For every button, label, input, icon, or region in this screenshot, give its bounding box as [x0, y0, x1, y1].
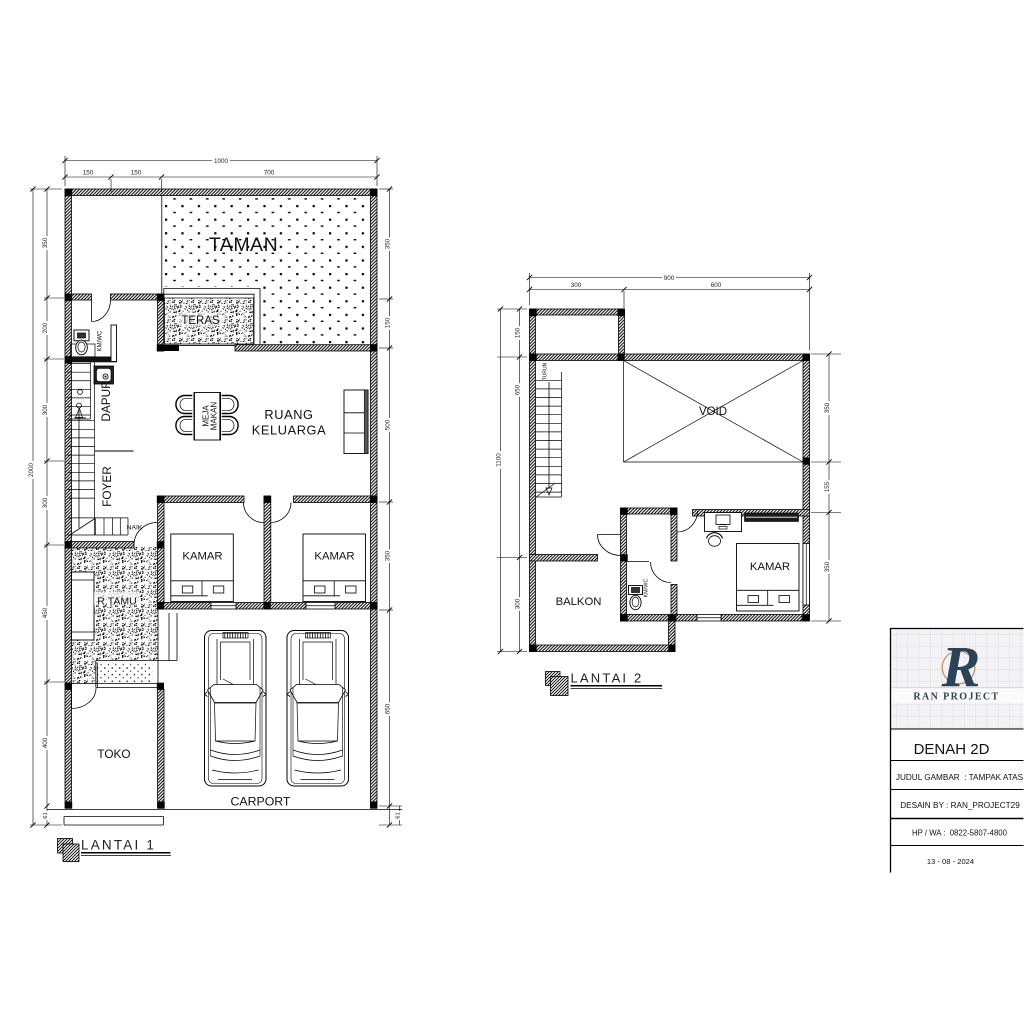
svg-text:R: R [941, 634, 981, 699]
svg-text:HP / WA : 0822-5807-4800: HP / WA : 0822-5807-4800 [912, 829, 1008, 838]
svg-text:61: 61 [43, 812, 49, 818]
svg-text:DENAH 2D: DENAH 2D [914, 741, 990, 758]
svg-text:KAMAR: KAMAR [182, 551, 222, 563]
svg-text:300: 300 [515, 598, 522, 609]
svg-text:TOKO: TOKO [97, 747, 130, 761]
svg-text:300: 300 [42, 497, 49, 508]
svg-text:1100: 1100 [496, 453, 503, 467]
svg-text:700: 700 [264, 170, 275, 177]
svg-text:400: 400 [42, 737, 49, 748]
svg-text:TURUN: TURUN [543, 362, 549, 380]
svg-text:DESAIN BY : RAN_PROJECT29: DESAIN BY : RAN_PROJECT29 [900, 801, 1020, 810]
svg-text:KELUARGA: KELUARGA [252, 423, 327, 438]
svg-text:1000: 1000 [214, 158, 229, 165]
svg-text:KM/WC: KM/WC [644, 579, 650, 598]
svg-text:VOID: VOID [699, 406, 727, 418]
svg-text:450: 450 [42, 607, 49, 618]
svg-text:150: 150 [131, 170, 142, 177]
svg-text:650: 650 [385, 703, 392, 714]
svg-text:BALKON: BALKON [556, 596, 602, 608]
svg-text:LANTAI 1: LANTAI 1 [81, 838, 156, 853]
svg-text:350: 350 [42, 237, 49, 248]
svg-text:150: 150 [385, 317, 392, 328]
svg-text:NAIK: NAIK [127, 525, 143, 532]
svg-text:KAMAR: KAMAR [314, 551, 354, 563]
svg-text:350: 350 [385, 238, 392, 249]
svg-text:600: 600 [711, 282, 722, 289]
svg-text:KM/WC: KM/WC [98, 330, 104, 351]
svg-text:200: 200 [42, 322, 49, 333]
svg-text:CARPORT: CARPORT [231, 795, 291, 809]
svg-text:13 - 08 - 2024: 13 - 08 - 2024 [927, 857, 974, 866]
svg-text:150: 150 [83, 170, 94, 177]
svg-text:RAN PROJECT: RAN PROJECT [913, 692, 999, 703]
svg-text:LANTAI 2: LANTAI 2 [571, 671, 644, 686]
svg-text:150: 150 [515, 327, 522, 338]
svg-text:2000: 2000 [28, 463, 35, 478]
svg-text:TAMAN: TAMAN [209, 234, 278, 256]
svg-text:650: 650 [515, 384, 522, 395]
svg-text:350: 350 [824, 561, 831, 572]
svg-text:61: 61 [396, 812, 402, 818]
svg-text:350: 350 [385, 550, 392, 561]
svg-text:500: 500 [385, 419, 392, 430]
svg-text:KAMAR: KAMAR [750, 561, 790, 573]
svg-text:R.TAMU: R.TAMU [97, 596, 136, 608]
svg-text:FOYER: FOYER [100, 466, 114, 507]
svg-text:TERAS: TERAS [181, 315, 220, 327]
svg-text:MAKAN: MAKAN [210, 402, 219, 431]
svg-text:JUDUL GAMBAR : TAMPAK ATAS: JUDUL GAMBAR : TAMPAK ATAS [896, 773, 1024, 782]
svg-text:DAPUR: DAPUR [99, 380, 113, 421]
svg-text:155: 155 [824, 481, 831, 492]
svg-text:RUANG: RUANG [264, 407, 313, 422]
svg-text:300: 300 [571, 282, 582, 289]
svg-text:350: 350 [824, 402, 831, 413]
svg-text:900: 900 [664, 275, 675, 282]
svg-text:300: 300 [42, 404, 49, 415]
